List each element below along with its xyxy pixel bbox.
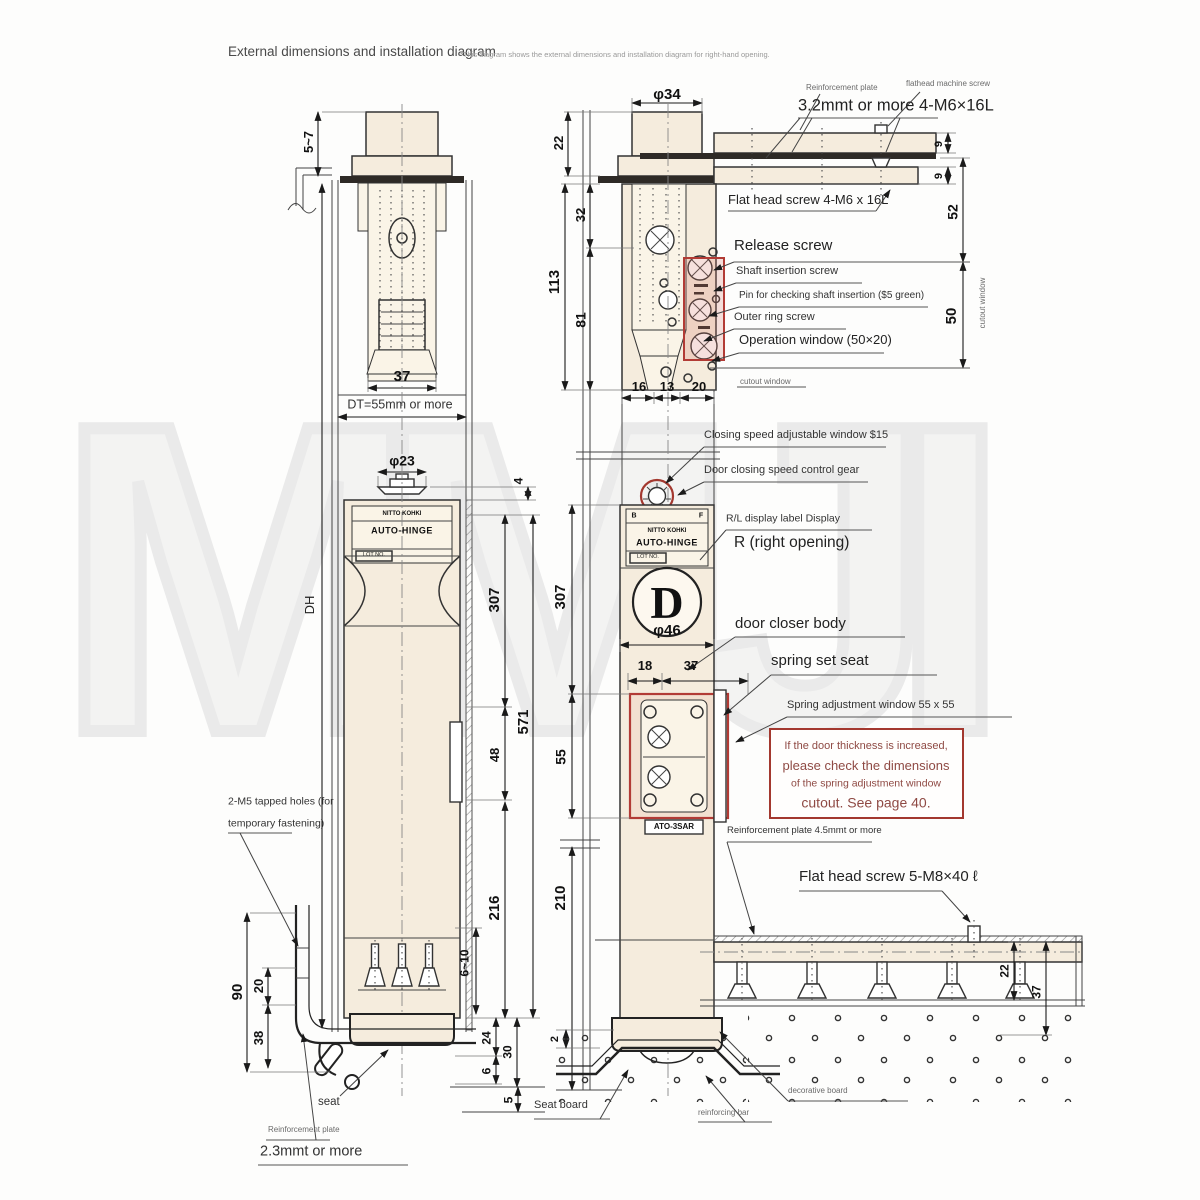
reinforcement-plate-top	[640, 153, 936, 159]
dim-113: 113	[547, 270, 563, 294]
spring-set-seat-tab	[714, 690, 726, 822]
logo-maker-front: NITTO KOHKI	[383, 511, 422, 517]
label-tapped-holes-1: 2-M5 tapped holes (for	[228, 796, 334, 807]
label-door-closer-body: door closer body	[735, 616, 846, 632]
dim-22: 22	[552, 136, 566, 150]
dim-37-front: 37	[394, 369, 411, 385]
diagram-canvas	[0, 0, 1200, 1200]
label-reinforcement-plate-front: Reinforcement plate	[268, 1126, 340, 1134]
top-cap-side	[632, 112, 702, 156]
label-flat-head-4m6: Flat head screw 4-M6 x 16L	[728, 193, 888, 207]
dim-24: 24	[481, 1031, 494, 1044]
label-rl-display: R/L display label Display	[726, 513, 840, 524]
label-decorative-board: decorative board	[788, 1087, 848, 1095]
dim-dh: DH	[303, 596, 317, 615]
label-flathead-machine-screw: flathead machine screw	[906, 80, 990, 88]
dim-22-bottom: 22	[999, 964, 1012, 977]
dim-5-7: 5~7	[302, 131, 316, 153]
label-outer-ring-screw: Outer ring screw	[734, 312, 815, 324]
dim-55: 55	[554, 749, 569, 765]
note-line-2: please check the dimensions	[783, 759, 950, 773]
dim-16: 16	[632, 380, 646, 394]
label-speed-control-gear: Door closing speed control gear	[704, 465, 859, 477]
dim-52: 52	[946, 204, 961, 220]
note-line-4: cutout. See page 40.	[801, 796, 930, 811]
dim-9a: 9	[934, 141, 946, 147]
dim-32: 32	[574, 208, 588, 222]
flat-head-screw-5m8	[968, 926, 980, 942]
dim-phi23: φ23	[389, 454, 415, 469]
dim-30: 30	[502, 1045, 515, 1058]
label-spring-set-seat: spring set seat	[771, 653, 869, 669]
operation-window-highlight	[684, 258, 724, 360]
logo-brand-side: AUTO-HINGE	[636, 538, 698, 547]
label-tapped-holes-2: temporary fastening)	[228, 818, 324, 829]
dim-4: 4	[513, 478, 526, 485]
spring-supports-front	[365, 940, 439, 990]
front-view	[228, 104, 545, 1165]
dim-20-side: 20	[692, 380, 706, 394]
d-mark: D	[650, 579, 683, 627]
label-closing-speed-window: Closing speed adjustable window $15	[704, 430, 888, 442]
dim-48: 48	[488, 748, 502, 762]
dim-13: 13	[660, 380, 674, 394]
page-title-note: *This diagram shows the external dimensi…	[460, 51, 770, 59]
model-code: ATO-3SAR	[654, 823, 694, 831]
dim-18: 18	[638, 659, 652, 673]
label-reinforcement-4-5mmt: Reinforcement plate 4.5mmt or more	[727, 826, 882, 836]
dim-phi34: φ34	[653, 87, 680, 103]
logo-lot-side: LOT NO.	[637, 555, 659, 561]
label-release-screw: Release screw	[734, 238, 832, 254]
logo-mark-b: B	[631, 512, 636, 519]
label-2-3mmt: 2.3mmt or more	[260, 1144, 362, 1159]
label-r-right-opening: R (right opening)	[734, 535, 849, 551]
dim-216: 216	[487, 895, 503, 920]
page-title: External dimensions and installation dia…	[228, 45, 496, 59]
logo-brand-front: AUTO-HINGE	[371, 526, 433, 535]
side-notch	[450, 722, 462, 802]
dim-37-bottom: 37	[1031, 985, 1044, 998]
dim-50: 50	[944, 308, 960, 325]
logo-maker-side: NITTO KOHKI	[648, 528, 687, 534]
label-seat: seat	[318, 1096, 340, 1108]
machine-screw	[872, 158, 890, 167]
label-cutout-window-vertical: cutout window	[979, 278, 987, 329]
logo-lot-front: LOT NO.	[363, 553, 385, 559]
seat-side	[612, 1018, 722, 1051]
dim-2: 2	[550, 1036, 562, 1042]
label-3-2mmt: 3.2mmt or more 4-M6×16L	[798, 97, 994, 114]
top-arm-bar1	[714, 133, 936, 153]
dim-307-front: 307	[487, 587, 503, 612]
dim-81: 81	[574, 312, 589, 328]
label-seat-board: Seat board	[534, 1100, 588, 1112]
label-operation-window: Operation window (50×20)	[739, 333, 892, 347]
dim-5: 5	[503, 1097, 516, 1104]
break-symbol	[288, 203, 316, 213]
label-reinforcement-plate-top: Reinforcement plate	[806, 84, 878, 92]
label-cutout-window-2: cutout window	[740, 378, 791, 386]
dim-dt-note: DT=55mm or more	[347, 398, 452, 411]
label-reinforcing-bar: reinforcing bar	[698, 1109, 749, 1117]
dim-90: 90	[230, 984, 246, 1001]
label-flat-head-5m8: Flat head screw 5-M8×40 ℓ	[799, 869, 978, 885]
label-shaft-insertion-screw: Shaft insertion screw	[736, 266, 838, 278]
dim-20: 20	[252, 979, 266, 993]
label-spring-adjustment-window: Spring adjustment window 55 x 55	[787, 700, 955, 712]
logo-mark-f: F	[699, 512, 703, 519]
note-line-1: If the door thickness is increased,	[784, 741, 947, 753]
dim-37-side: 37	[684, 659, 698, 673]
top-arm-bar2	[714, 167, 918, 184]
dim-9b: 9	[934, 173, 946, 179]
dim-210: 210	[553, 885, 569, 910]
dim-307-side: 307	[553, 584, 569, 609]
note-line-3: of the spring adjustment window	[791, 778, 941, 789]
dim-6-10: 6~10	[459, 949, 472, 976]
reinforcement-plate-bottom	[714, 936, 1082, 942]
label-check-pin: Pin for checking shaft insertion ($5 gre…	[739, 291, 924, 302]
dim-6: 6	[481, 1068, 494, 1075]
dim-571: 571	[516, 709, 532, 734]
speed-control-gear	[649, 488, 666, 505]
dim-38: 38	[252, 1031, 266, 1045]
